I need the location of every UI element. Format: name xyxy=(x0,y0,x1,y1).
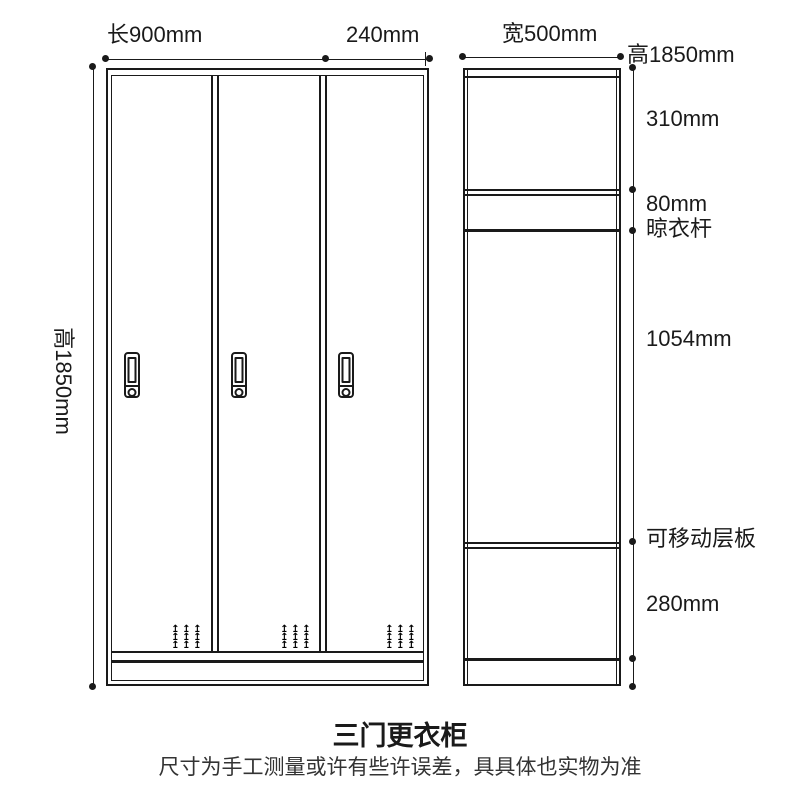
product-title: 三门更衣柜 xyxy=(0,714,800,753)
dimension-dot xyxy=(89,63,96,70)
vent-grid-2: ↥↥↥↥↥↥↥↥↥ xyxy=(279,626,312,650)
door-lock-1 xyxy=(124,352,140,398)
dimension-dot xyxy=(629,655,636,662)
dim-label-310: 310mm xyxy=(646,106,719,132)
locker-dimension-diagram: ↥↥↥↥↥↥↥↥↥ ↥↥↥↥↥↥↥↥↥ ↥↥↥↥↥↥↥↥↥ xyxy=(0,0,800,800)
dimension-end-tick xyxy=(425,52,426,66)
door-divider-left-a xyxy=(211,76,213,652)
lock-handle-slot xyxy=(128,357,137,383)
lock-divider xyxy=(126,385,138,387)
left-height-dimension-line xyxy=(93,67,94,687)
dim-label-80: 80mm xyxy=(646,191,707,217)
vent-arrow-icon: ↥ xyxy=(384,642,395,650)
lock-keyhole-icon xyxy=(235,388,244,397)
right-height-dimension-line xyxy=(633,68,634,687)
dimension-dot xyxy=(629,683,636,690)
vent-arrow-icon: ↥ xyxy=(290,642,301,650)
lock-handle-slot xyxy=(342,357,351,383)
side-top-dimension-line xyxy=(463,57,621,58)
side-shelf-top-line-a xyxy=(465,189,619,191)
vent-arrow-icon: ↥ xyxy=(181,642,192,650)
lock-keyhole-icon xyxy=(128,388,137,397)
vent-grid-1: ↥↥↥↥↥↥↥↥↥ xyxy=(170,626,203,650)
dim-label-length: 长900mm xyxy=(107,22,202,48)
front-inner-frame xyxy=(111,75,424,681)
lock-divider xyxy=(340,385,352,387)
dimension-dot xyxy=(629,227,636,234)
side-movable-shelf-line-b xyxy=(465,547,619,549)
front-top-dimension-line xyxy=(106,59,430,60)
lock-keyhole-icon xyxy=(342,388,351,397)
dimension-dot xyxy=(102,55,109,62)
side-top-rail-line xyxy=(465,76,619,78)
dimension-dot xyxy=(322,55,329,62)
dim-label-1054: 1054mm xyxy=(646,326,732,352)
door-bottom-line xyxy=(112,651,423,653)
door-divider-right-b xyxy=(325,76,327,652)
label-hanger-rod: 晾衣杆 xyxy=(646,216,712,242)
door-divider-left-b xyxy=(217,76,219,652)
side-inner-right-line xyxy=(616,70,617,684)
dim-label-depth: 宽500mm xyxy=(502,21,597,47)
dimension-dot xyxy=(426,55,433,62)
lock-handle-slot xyxy=(235,357,244,383)
label-movable-shelf: 可移动层板 xyxy=(646,526,756,552)
vent-arrow-icon: ↥ xyxy=(279,642,290,650)
side-inner-left-line xyxy=(467,70,468,684)
dimension-dot xyxy=(89,683,96,690)
dimension-dot xyxy=(629,186,636,193)
vent-grid-3: ↥↥↥↥↥↥↥↥↥ xyxy=(384,626,417,650)
dim-label-door-width: 240mm xyxy=(346,22,419,48)
vent-arrow-icon: ↥ xyxy=(406,642,417,650)
dimension-dot xyxy=(459,53,466,60)
dim-label-280: 280mm xyxy=(646,591,719,617)
dimension-dot xyxy=(617,53,624,60)
product-disclaimer: 尺寸为手工测量或许有些许误差，具具体也实物为准 xyxy=(0,751,800,781)
lock-divider xyxy=(233,385,245,387)
vent-arrow-icon: ↥ xyxy=(170,642,181,650)
vent-arrow-icon: ↥ xyxy=(395,642,406,650)
door-lock-3 xyxy=(338,352,354,398)
dim-label-height-right: 高1850mm xyxy=(627,42,735,68)
dimension-dot xyxy=(629,538,636,545)
dim-label-height-left: 高1850mm xyxy=(50,327,76,435)
side-base-line xyxy=(465,658,619,661)
vent-arrow-icon: ↥ xyxy=(192,642,203,650)
side-hanger-rod-line xyxy=(465,229,619,232)
vent-arrow-icon: ↥ xyxy=(301,642,312,650)
door-divider-right-a xyxy=(319,76,321,652)
side-movable-shelf-line-a xyxy=(465,542,619,544)
side-outer-frame xyxy=(463,68,621,686)
door-lock-2 xyxy=(231,352,247,398)
base-panel-line xyxy=(112,660,423,663)
side-shelf-top-line-b xyxy=(465,194,619,196)
